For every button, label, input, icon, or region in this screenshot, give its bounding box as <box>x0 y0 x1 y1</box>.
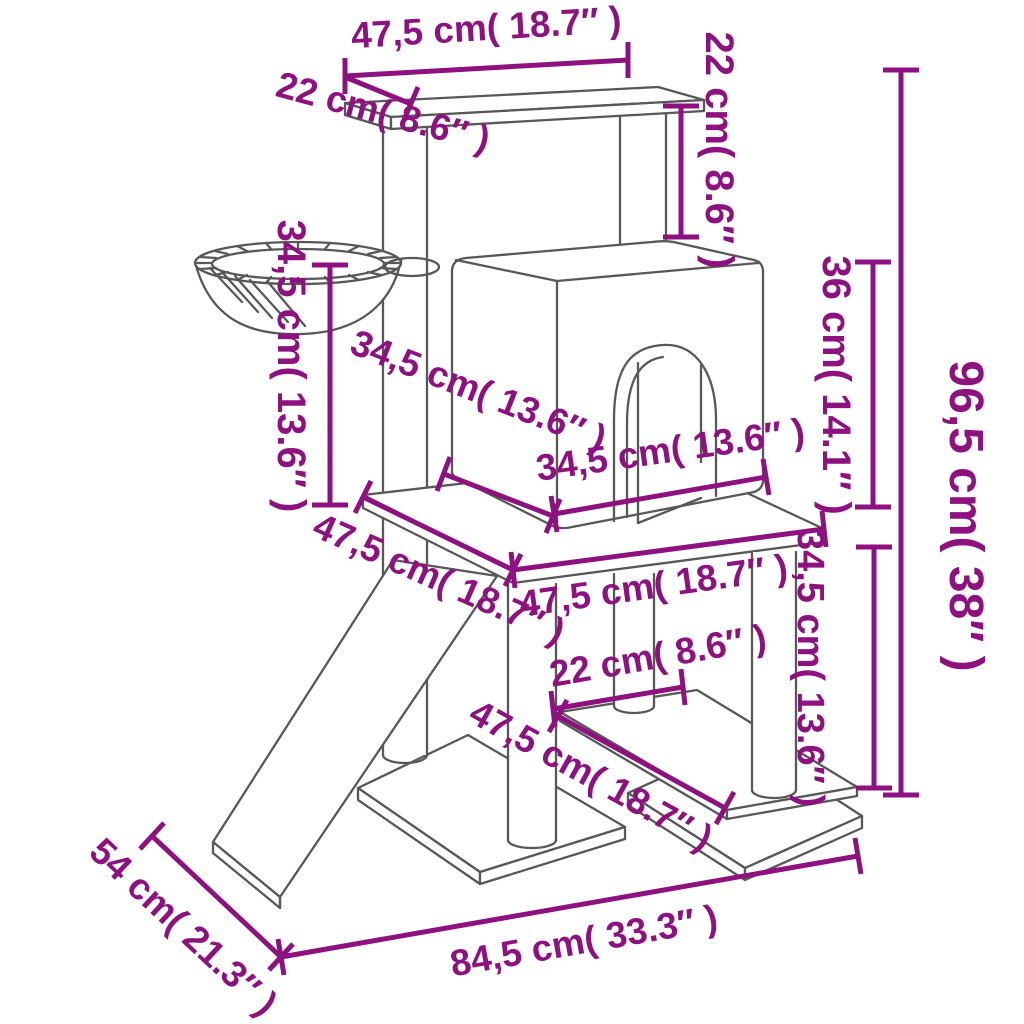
cat-tree-dimension-drawing: 47,5 cm( 18.7″ ) 22 cm( 8.6″ ) 22 cm( 8.… <box>0 0 1024 1024</box>
dimension-label: 47,5 cm( 18.7″ ) <box>350 0 623 56</box>
dimension-total-height: 96,5 cm( 38″ ) <box>883 70 992 795</box>
dimension-house-height: 36 cm( 14.1″ ) <box>814 255 891 514</box>
dimension-label: 34,5 cm( 13.6″ ) <box>269 220 313 513</box>
dimension-basket-height: 34,5 cm( 13.6″ ) <box>269 220 348 513</box>
dimension-top-to-house-gap: 22 cm( 8.6″ ) <box>663 31 741 268</box>
scratching-post-top-right <box>620 113 666 252</box>
dimension-label: 22 cm( 8.6″ ) <box>546 616 769 694</box>
dimension-label: 36 cm( 14.1″ ) <box>814 255 858 514</box>
dimension-diagram-canvas: 47,5 cm( 18.7″ ) 22 cm( 8.6″ ) 22 cm( 8.… <box>0 0 1024 1024</box>
dimension-label: 34,5 cm( 13.6″ ) <box>789 529 831 807</box>
dimension-label: 84,5 cm( 33.3″ ) <box>447 897 721 984</box>
dimension-label: 22 cm( 8.6″ ) <box>697 31 741 268</box>
dimension-label: 96,5 cm( 38″ ) <box>939 360 992 671</box>
dimension-lower-section-height: 34,5 cm( 13.6″ ) <box>789 529 892 807</box>
dimension-top-shelf-width: 47,5 cm( 18.7″ ) <box>345 0 628 94</box>
